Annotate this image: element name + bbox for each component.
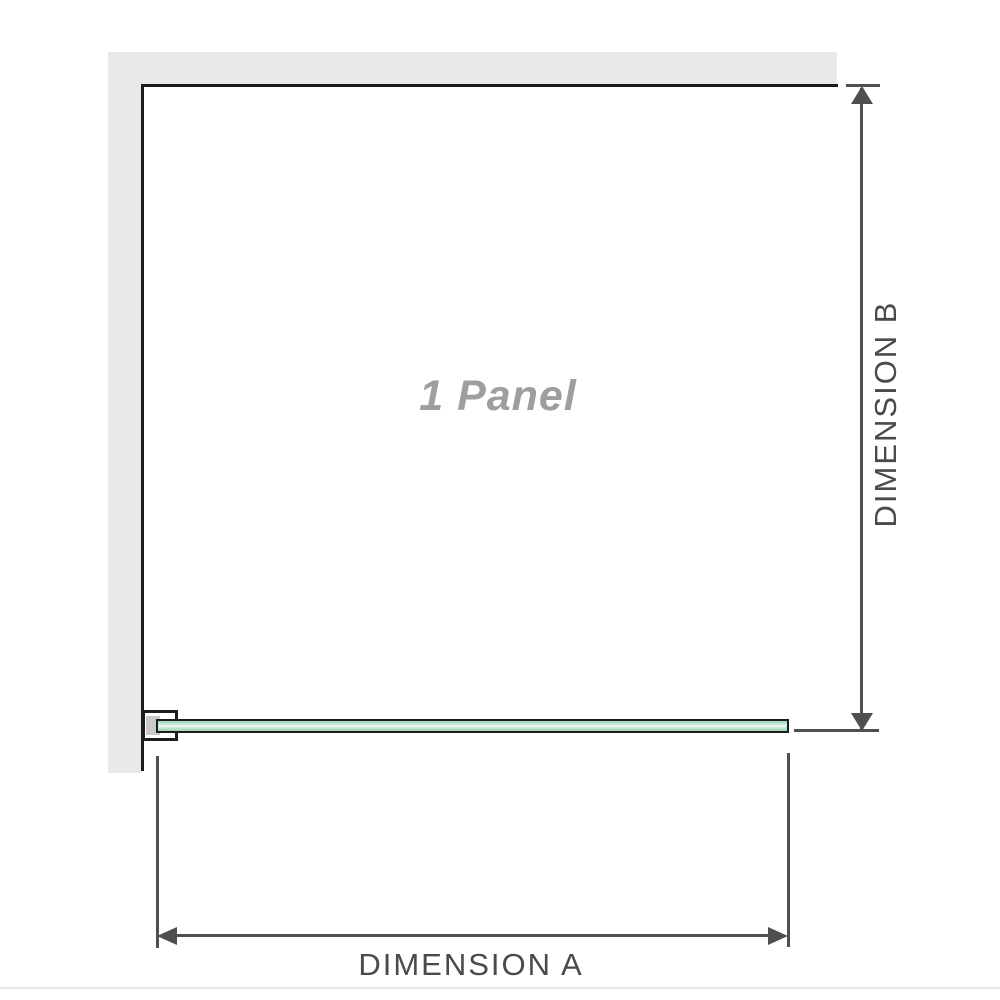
- arrow-up-icon: [851, 86, 873, 104]
- wall-left: [108, 52, 141, 773]
- shower-screen-dimension-diagram: 1 Panel DIMENSION B DIMENSION A: [0, 0, 1000, 1000]
- arrow-right-icon: [768, 927, 788, 945]
- enclosure-left-edge: [141, 84, 144, 771]
- dimension-b-line: [860, 88, 863, 730]
- image-bottom-divider: [0, 987, 1000, 989]
- arrow-left-icon: [157, 927, 177, 945]
- dimension-a-right-extension: [787, 753, 790, 947]
- dimension-a-label: DIMENSION A: [296, 948, 646, 982]
- dimension-a-line: [162, 934, 782, 937]
- wall-top: [108, 52, 837, 85]
- glass-panel: [156, 719, 789, 733]
- panel-count-label: 1 Panel: [398, 372, 598, 420]
- dimension-b-label: DIMENSION B: [868, 94, 904, 734]
- dimension-a-left-extension: [156, 756, 159, 948]
- arrow-down-icon: [851, 713, 873, 731]
- enclosure-top-edge: [141, 84, 838, 87]
